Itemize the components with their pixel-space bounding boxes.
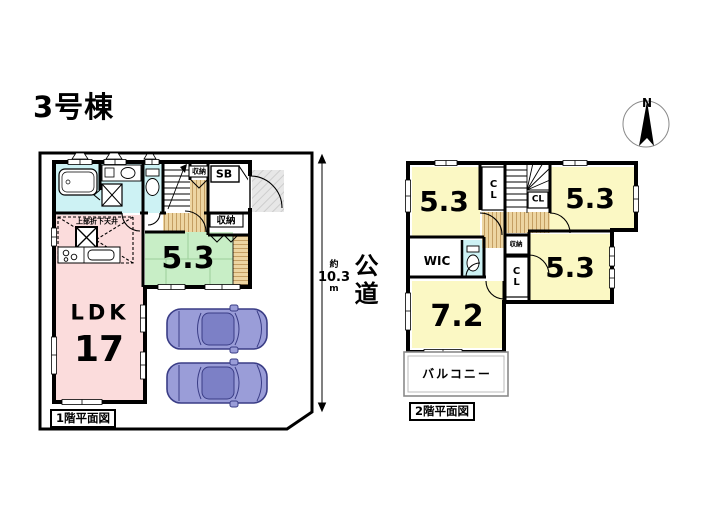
kitchen-ceiling-note: 上部折下天井: [76, 219, 118, 226]
storage-label-2f: 収納: [510, 241, 523, 248]
depth-unit: m: [317, 285, 351, 294]
sink-icon: [102, 165, 141, 181]
compass-north-label: N: [642, 97, 652, 109]
closet-nw-label: CL: [488, 179, 498, 201]
wood-strip: [233, 235, 249, 285]
wic-label: WIC: [424, 255, 451, 267]
car-icon: [167, 359, 267, 407]
floor1-caption: 1階平面図: [50, 409, 116, 428]
closet-mid-label: CL: [532, 196, 544, 205]
toilet-icon-1f: [146, 169, 159, 196]
closet-e-label: CL: [511, 266, 521, 288]
room-size-nw: 5.3: [419, 188, 469, 216]
ldk-label: LDK: [70, 303, 129, 324]
storage-label-1f: 収納: [216, 216, 235, 226]
ldk-size: 17: [74, 332, 124, 368]
car-icon: [167, 305, 267, 353]
range-hood-icon: [76, 227, 97, 248]
floor1-plan: [36, 148, 332, 438]
floorplan-page: 3号棟 N 5.3 LDK 17 収納 SB 収納 上部折下天井 1階平面図 約…: [0, 0, 705, 525]
bathtub-icon: [59, 169, 97, 195]
washing-machine-icon: [102, 184, 122, 206]
stair-closet-label: 収納: [192, 169, 206, 176]
shoe-box-label: SB: [216, 169, 232, 180]
page-title: 3号棟: [33, 84, 114, 126]
toilet-icon-2f: [467, 246, 479, 271]
balcony-label: バルコニー: [422, 368, 492, 380]
kitchen-counter-icon: [58, 247, 120, 263]
room-size-sw: 7.2: [430, 302, 483, 332]
room-size-e: 5.3: [545, 254, 595, 282]
floor2-caption: 2階平面図: [409, 402, 475, 421]
room-size-tatami: 5.3: [161, 244, 214, 274]
room-size-ne: 5.3: [565, 185, 615, 213]
depth-value: 10.3: [317, 271, 351, 285]
road-label: 公道: [352, 253, 376, 309]
